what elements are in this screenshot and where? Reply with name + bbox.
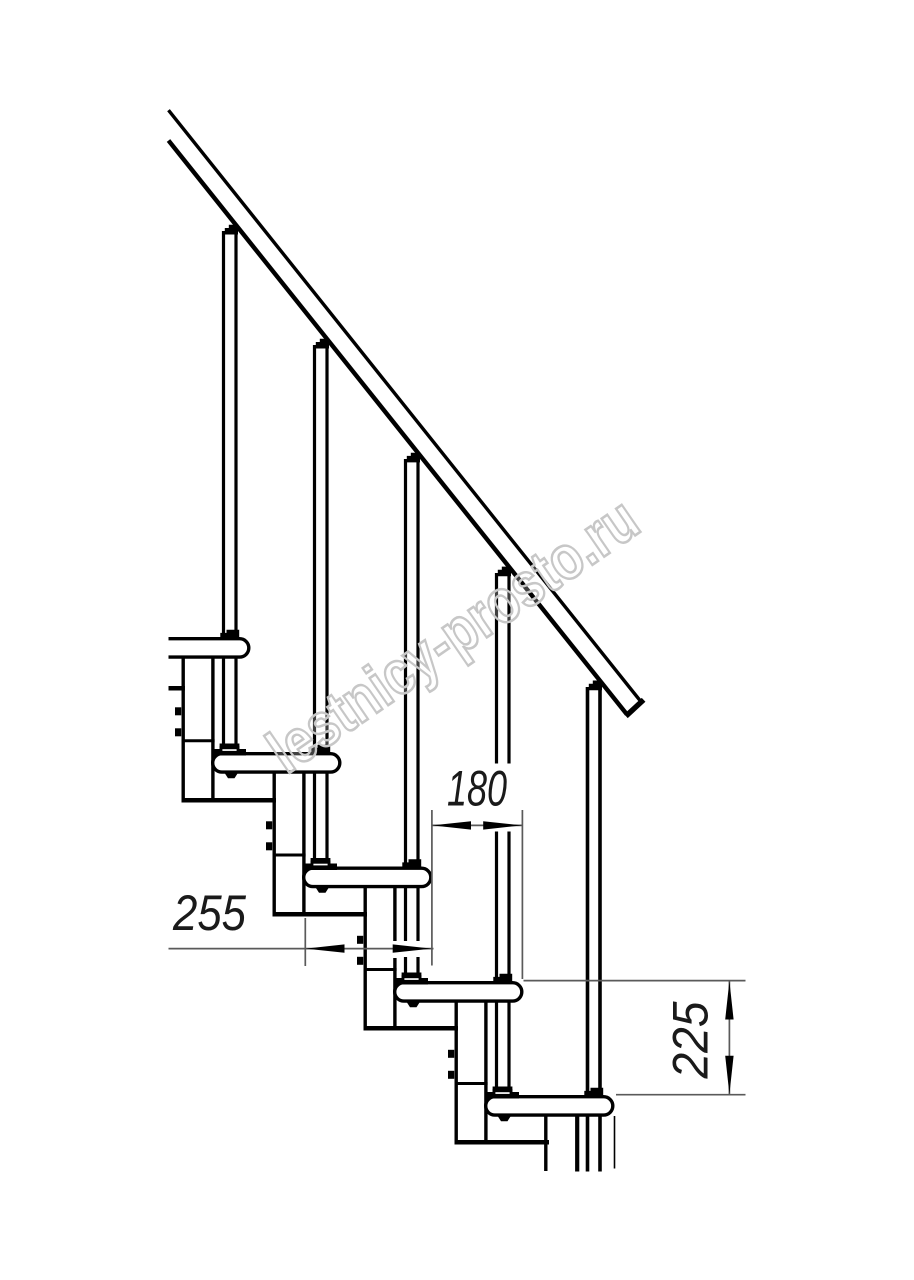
svg-text:255: 255 [172,885,246,941]
svg-text:225: 225 [663,1001,719,1079]
svg-text:180: 180 [447,761,507,817]
